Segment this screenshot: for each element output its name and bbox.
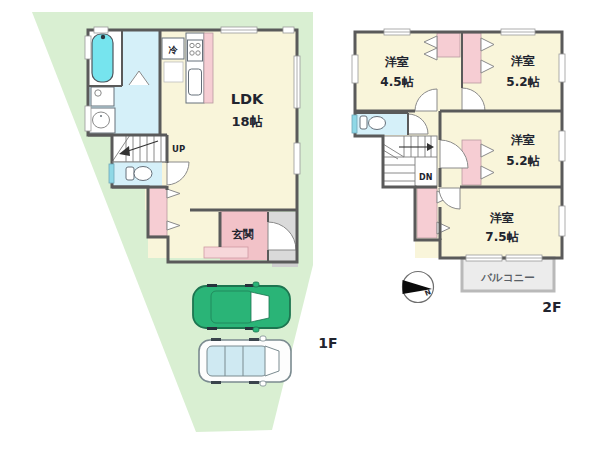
car-green (193, 282, 290, 332)
closet-1f (148, 188, 167, 236)
toilet-1f-window (109, 164, 114, 183)
ldk-size-label: 18帖 (231, 114, 263, 129)
floor2-label: 2F (542, 299, 561, 315)
room-52b-label: 洋室 (510, 133, 535, 147)
ldk-label: LDK (231, 91, 264, 107)
toilet-tank-1f (126, 167, 134, 180)
bathtub (92, 34, 113, 82)
stairs-1f-area (112, 135, 167, 162)
closet-2f-a (437, 33, 460, 57)
floor1-label: 1F (318, 335, 337, 351)
room-45-label: 洋室 (384, 55, 409, 69)
kitchen-counter-edge (204, 33, 213, 103)
stove (188, 40, 203, 61)
room-52a-size: 5.2帖 (506, 75, 540, 89)
stairs-up-label: UP (172, 144, 185, 154)
room-75-size: 7.5帖 (485, 230, 519, 244)
kitchen-table (164, 62, 183, 82)
closet-2f-d (417, 188, 437, 238)
room-75-label: 洋室 (489, 211, 514, 225)
room-52b-size: 5.2帖 (506, 154, 540, 168)
floor2-plan: 洋室 4.5帖 洋室 5.2帖 洋室 5.2帖 洋室 7.5帖 DN バルコニー… (352, 29, 565, 315)
room-52a-label: 洋室 (510, 54, 535, 68)
toilet-tank-2f (360, 116, 367, 129)
car-white (199, 336, 291, 386)
vanity-faucet-icon (100, 115, 102, 117)
stairs-down-label: DN (419, 173, 432, 182)
compass-icon: N (403, 272, 434, 303)
washing-machine-pan (91, 87, 114, 106)
room-45-size: 4.5帖 (380, 75, 414, 89)
toilet-bowl-2f (369, 117, 386, 130)
floor-plan-page: LDK 18帖 冷 UP 玄関 1F (0, 0, 600, 450)
fridge-label: 冷 (169, 45, 179, 55)
closet-2f-b (462, 33, 481, 83)
floor-plan-drawing: LDK 18帖 冷 UP 玄関 1F (0, 0, 600, 450)
toilet-bowl-1f (134, 167, 152, 181)
bath-faucet-icon (101, 35, 105, 39)
balcony-label: バルコニー (480, 271, 534, 283)
toilet-2f-window (352, 115, 357, 133)
entrance-label: 玄関 (231, 228, 254, 241)
entrance-step (204, 247, 248, 258)
kitchen-sink (189, 69, 202, 95)
